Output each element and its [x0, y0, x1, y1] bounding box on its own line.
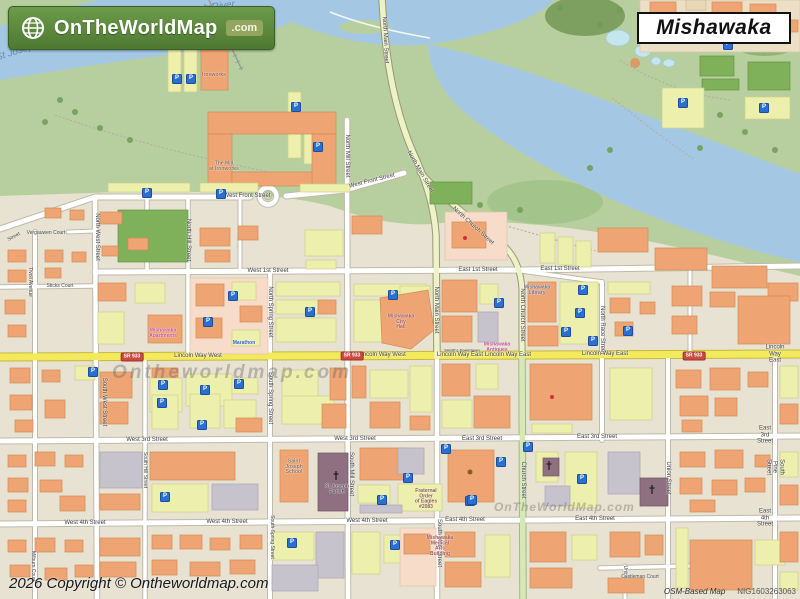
parking-icon: P: [467, 495, 477, 505]
parking-icon: P: [313, 142, 323, 152]
copyright-text: 2026 Copyright © Ontheworldmap.com: [9, 575, 269, 592]
watermark: Ontheworldmap.com: [112, 362, 352, 384]
route-shield: SR 933: [683, 352, 706, 361]
parking-icon: P: [577, 474, 587, 484]
map-title: Mishawaka: [656, 16, 771, 40]
map-code-label: NIG1603263063: [737, 587, 796, 596]
parking-icon: P: [172, 74, 182, 84]
map-canvas: Ontheworldmap.comOnTheWorldMap.comSt Jos…: [0, 0, 800, 599]
poi-dot: [550, 395, 554, 399]
parking-icon: P: [678, 98, 688, 108]
church-cross-icon: [649, 481, 656, 499]
parking-icon: P: [88, 367, 98, 377]
parking-icon: P: [186, 74, 196, 84]
parking-icon: P: [216, 189, 226, 199]
watermark: OnTheWorldMap.com: [494, 500, 635, 514]
church-cross-icon: [546, 457, 553, 475]
parking-icon: P: [142, 188, 152, 198]
parking-icon: P: [441, 444, 451, 454]
globe-icon: [20, 15, 46, 41]
poi-dot: [630, 58, 640, 68]
page: Ontheworldmap.comOnTheWorldMap.comSt Jos…: [0, 0, 800, 599]
map-attribution: OSM-Based Map NIG1603263063: [664, 587, 796, 596]
parking-icon: P: [287, 538, 297, 548]
poi-dot: [468, 470, 473, 475]
logo-domain-badge: .com: [226, 20, 264, 36]
route-shield: SR 933: [121, 353, 144, 362]
map-svg: [0, 0, 800, 599]
parking-icon: P: [575, 308, 585, 318]
church-cross-icon: [333, 467, 340, 485]
site-logo[interactable]: OnTheWorldMap .com: [8, 6, 275, 50]
poi-dot: [463, 236, 467, 240]
parking-icon: P: [291, 102, 301, 112]
parking-icon: P: [200, 385, 210, 395]
parking-icon: P: [496, 457, 506, 467]
parking-icon: P: [523, 442, 533, 452]
parking-icon: P: [390, 540, 400, 550]
parking-icon: P: [160, 492, 170, 502]
logo-text: OnTheWorldMap: [54, 17, 218, 40]
parking-icon: P: [623, 326, 633, 336]
map-title-box: Mishawaka: [637, 12, 791, 44]
parking-icon: P: [588, 336, 598, 346]
parking-icon: P: [578, 285, 588, 295]
route-shield: SR 933: [341, 352, 364, 361]
parking-icon: P: [759, 103, 769, 113]
parking-icon: P: [494, 298, 504, 308]
parking-icon: P: [561, 327, 571, 337]
map-type-label: OSM-Based Map: [664, 587, 725, 596]
parking-icon: P: [377, 495, 387, 505]
roundabout: [260, 188, 277, 205]
parking-icon: P: [158, 380, 168, 390]
parking-icon: P: [234, 379, 244, 389]
parking-icon: P: [197, 420, 207, 430]
parking-icon: P: [305, 307, 315, 317]
parking-icon: P: [157, 398, 167, 408]
parking-icon: P: [403, 473, 413, 483]
parking-icon: P: [388, 290, 398, 300]
parking-icon: P: [228, 291, 238, 301]
parking-icon: P: [203, 317, 213, 327]
